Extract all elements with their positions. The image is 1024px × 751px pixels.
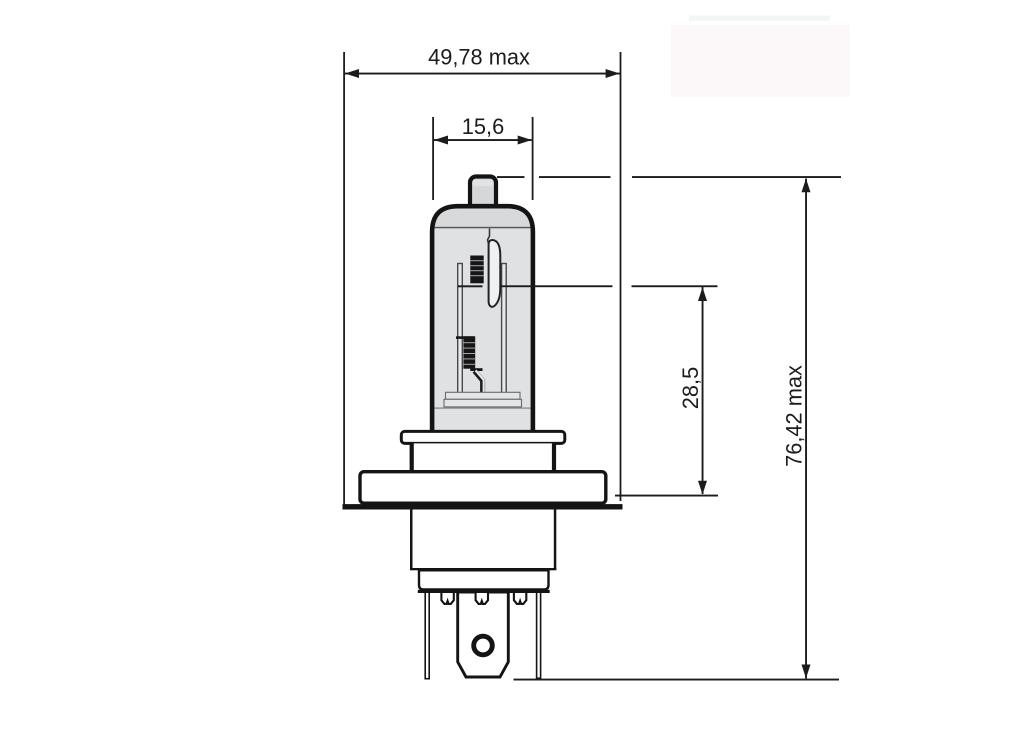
svg-text:15,6: 15,6 xyxy=(462,114,504,139)
svg-text:28,5: 28,5 xyxy=(678,367,703,409)
svg-text:76,42 max: 76,42 max xyxy=(782,365,807,467)
svg-text:49,78 max: 49,78 max xyxy=(428,45,530,70)
